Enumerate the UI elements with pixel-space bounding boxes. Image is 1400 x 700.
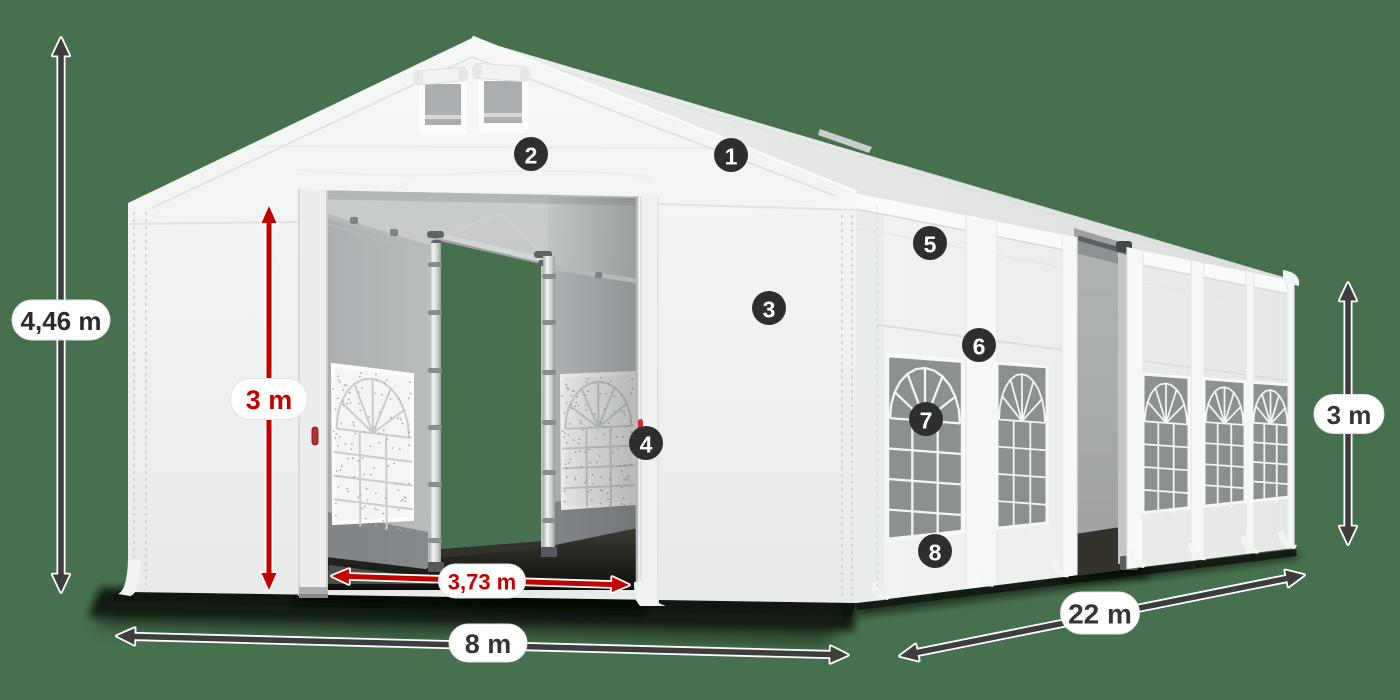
svg-text:7: 7: [920, 408, 933, 434]
svg-text:6: 6: [973, 334, 986, 360]
svg-text:1: 1: [725, 144, 738, 170]
svg-text:3: 3: [763, 297, 776, 323]
svg-text:3 m: 3 m: [1327, 400, 1372, 430]
svg-text:3,73 m: 3,73 m: [448, 570, 517, 595]
svg-text:8 m: 8 m: [465, 629, 512, 659]
svg-text:8: 8: [929, 540, 942, 566]
svg-text:2: 2: [525, 143, 538, 169]
svg-text:4,46 m: 4,46 m: [21, 306, 102, 336]
svg-text:3 m: 3 m: [246, 385, 293, 415]
svg-text:4: 4: [640, 432, 653, 458]
svg-text:22 m: 22 m: [1068, 599, 1132, 630]
svg-text:5: 5: [924, 232, 937, 258]
